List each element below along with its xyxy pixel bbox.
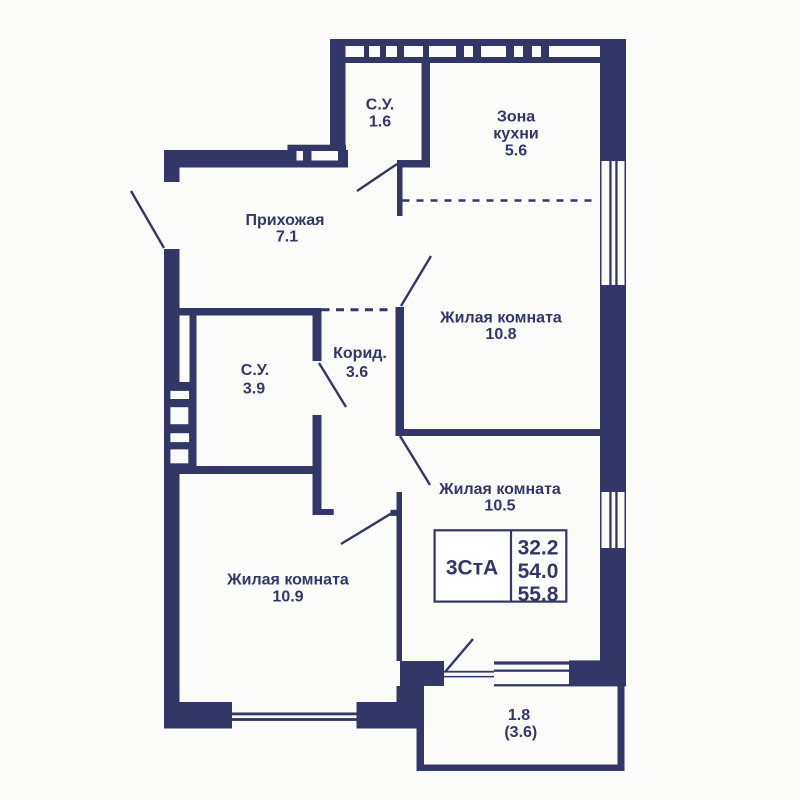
svg-text:10.5: 10.5 xyxy=(484,498,515,515)
svg-text:3.6: 3.6 xyxy=(346,364,368,381)
svg-text:Жилая комната: Жилая комната xyxy=(439,310,562,327)
svg-text:1.6: 1.6 xyxy=(369,114,391,131)
svg-text:32.2: 32.2 xyxy=(518,536,559,559)
svg-text:3СтА: 3СтА xyxy=(446,556,498,579)
svg-text:3.9: 3.9 xyxy=(243,381,265,398)
svg-text:1.8: 1.8 xyxy=(508,707,530,724)
svg-text:Прихожая: Прихожая xyxy=(246,212,325,229)
svg-text:5.6: 5.6 xyxy=(505,143,527,160)
svg-text:(3.6): (3.6) xyxy=(504,724,537,741)
svg-text:Корид.: Корид. xyxy=(333,345,387,362)
svg-text:Жилая комната: Жилая комната xyxy=(438,481,561,498)
svg-text:кухни: кухни xyxy=(493,126,539,143)
svg-text:С.У.: С.У. xyxy=(366,97,394,114)
svg-text:10.9: 10.9 xyxy=(272,589,303,606)
svg-text:7.1: 7.1 xyxy=(276,229,298,246)
svg-text:10.8: 10.8 xyxy=(485,326,516,343)
svg-text:55.8: 55.8 xyxy=(518,583,559,606)
svg-text:С.У.: С.У. xyxy=(241,362,269,379)
svg-text:Жилая комната: Жилая комната xyxy=(226,572,349,589)
svg-text:Зона: Зона xyxy=(497,109,535,126)
svg-text:54.0: 54.0 xyxy=(518,560,559,583)
